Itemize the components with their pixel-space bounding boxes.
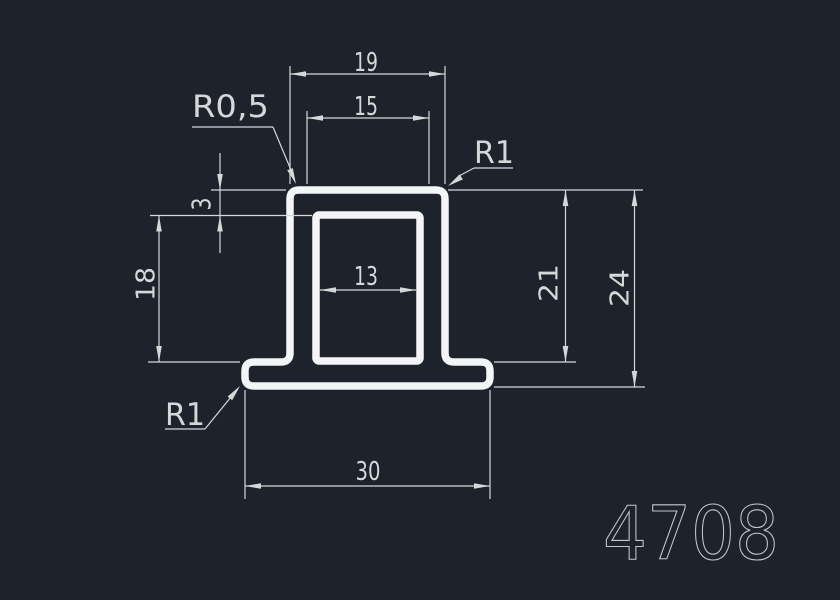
arrowhead <box>156 216 162 232</box>
arrowhead <box>429 71 445 77</box>
profile-drawing-4708: 19 15 3 18 <box>0 0 840 600</box>
leader-line <box>205 397 231 429</box>
arrowhead <box>320 287 336 293</box>
leader-arrowhead <box>287 168 296 184</box>
arrowhead <box>563 346 569 362</box>
radius-text-r05: R0,5 <box>192 89 269 125</box>
arrowhead <box>217 174 223 190</box>
dimension-text-30: 30 <box>356 457 381 487</box>
arrowhead <box>413 115 429 121</box>
arrowhead <box>474 483 490 489</box>
arrowhead <box>245 483 261 489</box>
arrowhead <box>563 190 569 206</box>
part-number-text: 4708 <box>603 491 779 577</box>
dimension-text-24: 24 <box>606 269 636 307</box>
radius-text-r1-top: R1 <box>474 135 514 171</box>
dimension-text-21: 21 <box>535 264 565 302</box>
arrowhead <box>632 190 638 206</box>
radius-text-r1-bottom: R1 <box>165 397 205 433</box>
arrowhead <box>307 115 323 121</box>
dimension-text-18: 18 <box>132 267 162 301</box>
dimension-30-group: 30 <box>245 390 490 499</box>
dimension-text-19: 19 <box>354 48 378 78</box>
dimension-15-group: 15 <box>307 92 429 184</box>
leader-line <box>273 127 291 170</box>
dimension-text-15: 15 <box>354 92 378 122</box>
dimension-24-group: 24 <box>494 190 645 387</box>
cad-drawing-canvas: 19 15 3 18 <box>0 0 840 600</box>
radius-label-r1-bottom-group: R1 <box>165 386 240 433</box>
dimension-18-group: 18 <box>132 216 240 363</box>
arrowhead <box>400 287 416 293</box>
dimension-text-13: 13 <box>354 262 378 292</box>
arrowhead <box>290 71 306 77</box>
arrowhead <box>632 371 638 387</box>
dimension-13-group: 13 <box>320 262 416 293</box>
leader-arrowhead <box>448 174 463 186</box>
radius-label-r1-top-group: R1 <box>448 135 514 186</box>
arrowhead <box>217 216 223 232</box>
radius-label-r05-group: R0,5 <box>192 89 296 184</box>
leader-line <box>459 168 474 176</box>
arrowhead <box>156 346 162 362</box>
dimension-text-3: 3 <box>188 198 218 211</box>
